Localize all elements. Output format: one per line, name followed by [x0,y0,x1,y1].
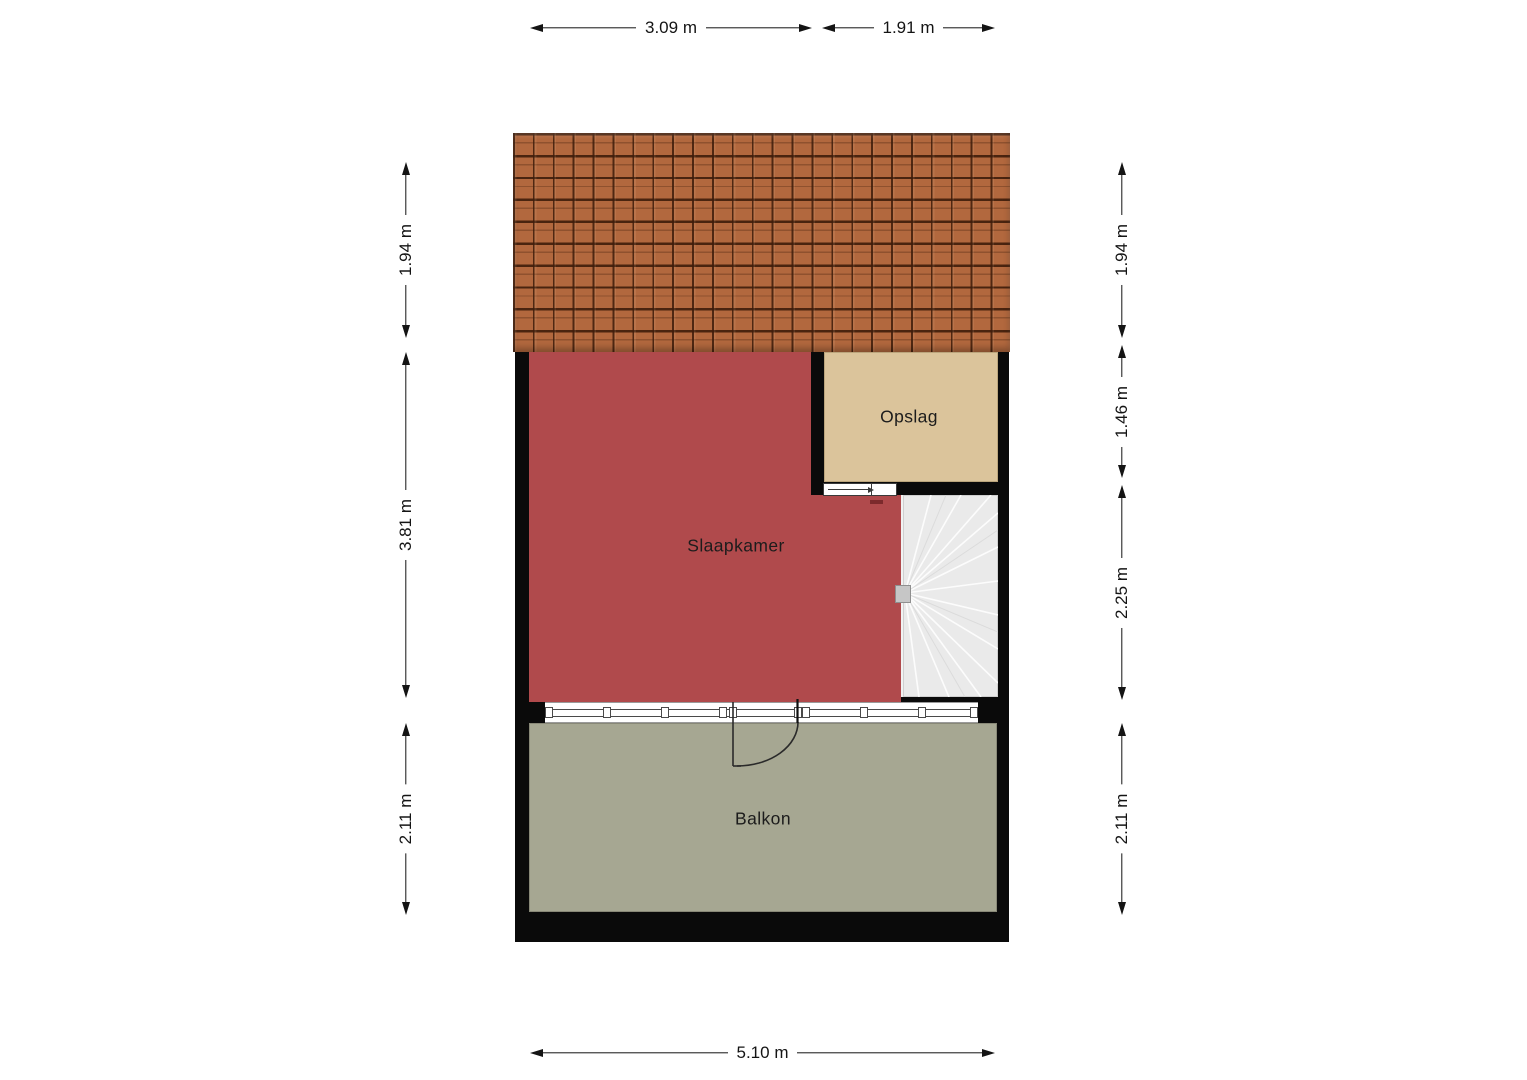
staircase [901,495,998,697]
arrow-left-icon [530,24,543,32]
window-mullion [860,707,868,718]
sliding-door-divider [871,484,872,495]
window-mullion [719,707,727,718]
dimension-label: 1.94 m [1112,215,1132,285]
window-mullion [603,707,611,718]
arrow-down-icon [402,325,410,338]
arrow-up-icon [402,352,410,365]
arrow-down-icon [402,685,410,698]
window-mullion [918,707,926,718]
dimension-label: 2.25 m [1112,558,1132,628]
dimension-left-bedroom: 3.81 m [394,352,418,698]
sliding-door-track [828,489,870,490]
room-label-balkon: Balkon [735,809,791,830]
floorplan-canvas: Slaapkamer Opslag Balkon 3.09 m 1.91 m 5… [0,0,1527,1080]
dimension-label: 3.81 m [396,490,416,560]
storage-sliding-door [823,483,897,496]
arrow-down-icon [1118,325,1126,338]
room-slaapkamer-extension [811,495,901,703]
arrow-up-icon [402,162,410,175]
arrow-up-icon [1118,723,1126,736]
room-label-slaapkamer: Slaapkamer [687,536,784,557]
window-mullion [545,707,553,718]
arrow-down-icon [1118,687,1126,700]
arrow-up-icon [1118,162,1126,175]
dimension-top-left: 3.09 m [530,16,812,40]
room-slaapkamer [529,352,811,703]
dimension-label: 1.91 m [874,18,944,38]
dimension-left-roof: 1.94 m [394,162,418,338]
dimension-right-stairs: 2.25 m [1110,485,1134,700]
dimension-right-roof: 1.94 m [1110,162,1134,338]
staircase-treads [903,495,998,697]
dimension-label: 2.11 m [396,785,416,854]
room-label-opslag: Opslag [880,407,938,428]
arrow-right-icon [982,1049,995,1057]
dimension-label: 3.09 m [636,18,706,38]
window-mullion [794,707,802,718]
dimension-label: 5.10 m [728,1043,798,1063]
wall-stub-right [978,702,1009,723]
roof-tiles [513,133,1010,352]
arrow-up-icon [1118,485,1126,498]
dimension-right-storage: 1.46 m [1110,345,1134,478]
dimension-label: 2.11 m [1112,785,1132,854]
dimension-bottom-width: 5.10 m [530,1041,995,1065]
arrow-up-icon [402,723,410,736]
wall-stub-left [515,702,545,723]
arrow-down-icon [1118,465,1126,478]
arrow-right-icon [799,24,812,32]
dimension-right-balcony: 2.11 m [1110,723,1134,915]
window-mullion [802,707,810,718]
dimension-left-balcony: 2.11 m [394,723,418,915]
window-mullion [970,707,978,718]
arrow-down-icon [402,902,410,915]
dimension-top-right: 1.91 m [822,16,995,40]
arrow-right-icon [982,24,995,32]
arrow-left-icon [530,1049,543,1057]
staircase-newel-post [895,585,911,603]
window-band [529,702,997,723]
arrow-left-icon [822,24,835,32]
arrow-down-icon [1118,902,1126,915]
dimension-label: 1.94 m [396,215,416,285]
arrow-up-icon [1118,345,1126,358]
window-mullion [661,707,669,718]
window-mullion [729,707,737,718]
dimension-label: 1.46 m [1112,377,1132,447]
